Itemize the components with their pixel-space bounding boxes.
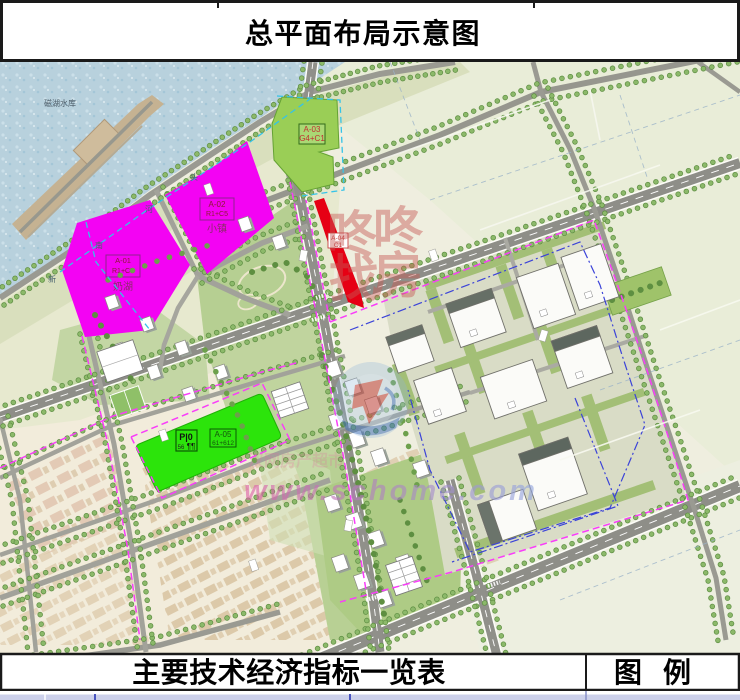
svg-text:头: 头: [190, 172, 198, 182]
svg-text:房: 房: [373, 248, 423, 304]
svg-text:P|0: P|0: [179, 432, 193, 442]
svg-text:主要技术经济指标一览表: 主要技术经济指标一览表: [132, 656, 446, 688]
svg-text:南: 南: [95, 240, 103, 250]
svg-text:56: 56: [178, 445, 185, 451]
svg-text:图例: 图例: [614, 657, 712, 688]
svg-text:小镇: 小镇: [207, 222, 227, 235]
svg-text:汉网房产超市: 汉网房产超市: [248, 451, 344, 470]
svg-text:www.schome.com: www.schome.com: [244, 475, 538, 507]
svg-text:A-05: A-05: [215, 430, 232, 439]
svg-text:总平面布局示意图: 总平面布局示意图: [245, 17, 481, 49]
svg-text:61+612: 61+612: [212, 440, 234, 447]
svg-text:A-01: A-01: [115, 256, 131, 265]
svg-text:A-03: A-03: [304, 125, 321, 134]
svg-text:¶¶: ¶¶: [187, 442, 196, 451]
svg-text:磁湖水库: 磁湖水库: [44, 98, 76, 108]
svg-text:R1+C5: R1+C5: [206, 211, 228, 218]
svg-text:新: 新: [48, 274, 56, 284]
svg-text:G4+C1: G4+C1: [299, 134, 325, 143]
svg-text:河: 河: [145, 204, 153, 214]
svg-text:找: 找: [329, 251, 379, 307]
svg-text:A-02: A-02: [209, 200, 226, 209]
